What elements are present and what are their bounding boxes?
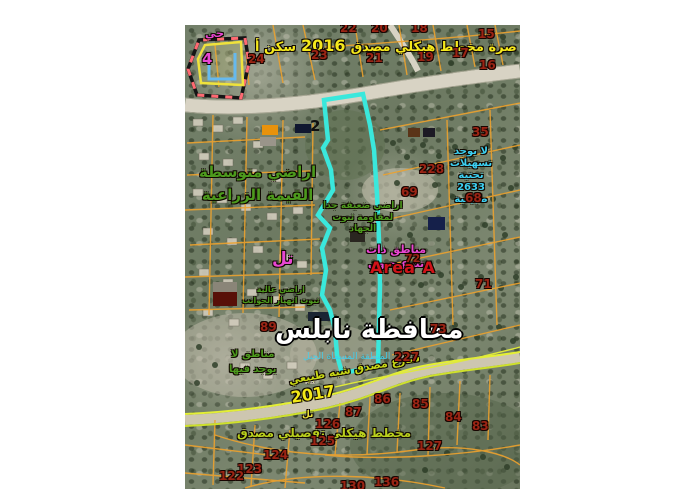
- no-zones-label: مناطق لا يوجد فيها: [229, 348, 276, 377]
- satellite-map[interactable]: سكن أ 2016 صرة مخطط هيكلي مصدق حي 4 2 ار…: [185, 25, 520, 489]
- high-lands-line2: ثبوت انهيار الجوانب: [242, 296, 320, 307]
- no-facilities-line2: تسهيلات: [448, 158, 494, 170]
- land-weak-line1: اراضي ضعيفة جدا: [323, 201, 403, 213]
- district-number: 4: [202, 51, 212, 68]
- parcel-number-18: 18: [411, 25, 428, 35]
- parcel-number-69: 69: [401, 185, 418, 199]
- parcel-number-17: 17: [452, 46, 469, 60]
- parcel-number-19: 19: [417, 50, 434, 64]
- parcel-number-130: 130: [340, 479, 365, 489]
- no-facilities-line3: تحتية: [448, 170, 494, 182]
- parcel-number-124: 124: [263, 448, 288, 462]
- area-a-label: Area A: [370, 259, 436, 277]
- parcel-number-84: 84: [445, 410, 462, 424]
- parcel-number-16: 16: [479, 58, 496, 72]
- parcel-number-24: 24: [248, 52, 265, 66]
- parcel-number-68: 68: [465, 191, 482, 205]
- parcel-number-72: 72: [405, 252, 420, 265]
- parcel-number-85: 85: [412, 397, 429, 411]
- parcel-number-136: 136: [374, 475, 399, 489]
- no-zones-line2: يوجد فيها: [229, 363, 276, 378]
- parcel-number-87: 87: [345, 405, 362, 419]
- parcel-number-228: 228: [419, 162, 444, 176]
- high-lands-line1: اراضي عالية: [242, 285, 320, 296]
- parcel-number-127: 127: [417, 439, 442, 453]
- parcel-number-126: 126: [315, 417, 340, 431]
- district-label: حي: [205, 28, 224, 41]
- land-medium-value-label: اراضي متوسطة القيمة الزراعية: [199, 161, 316, 208]
- parcel-number-15: 15: [478, 27, 495, 41]
- parcel-number-86: 86: [374, 392, 391, 406]
- land-weak-line2: لمقاومة ثبوت: [323, 213, 403, 225]
- high-lands-label: اراضي عالية ثبوت انهيار الجوانب: [242, 285, 320, 307]
- parcel-number-122: 122: [219, 469, 244, 483]
- map-overlay-graphics: [185, 25, 520, 489]
- neighbourhood-boundary-shapes: [188, 38, 249, 98]
- parcel-number-125: 125: [310, 434, 335, 448]
- parcel-number-35: 35: [472, 125, 489, 139]
- tell-town-label: تل: [272, 250, 294, 270]
- land-weak-line3: الجهاد: [323, 224, 403, 236]
- parcel-number-21: 21: [366, 51, 383, 65]
- parcel-number-83: 83: [472, 419, 489, 433]
- parcel-number-20: 20: [371, 25, 388, 35]
- parcel-number-23: 23: [311, 48, 328, 62]
- land-medium-line2: القيمة الزراعية: [199, 184, 316, 207]
- parcel-number-89: 89: [260, 320, 277, 334]
- parcel-number-227: 227: [394, 350, 419, 364]
- land-medium-line1: اراضي متوسطة: [199, 161, 316, 184]
- parcel-number-22: 22: [340, 25, 357, 35]
- parcel-number-71: 71: [475, 277, 492, 291]
- screenshot-stage: سكن أ 2016 صرة مخطط هيكلي مصدق حي 4 2 ار…: [0, 0, 700, 490]
- parcel-number-73: 73: [430, 322, 447, 336]
- no-zones-line1: مناطق لا: [229, 348, 276, 363]
- land-weak-label: اراضي ضعيفة جدا لمقاومة ثبوت الجهاد: [323, 201, 403, 236]
- no-facilities-line1: لا يوجد: [448, 146, 494, 158]
- tell-small-label: تل: [302, 410, 313, 420]
- legend-number: 2: [310, 118, 320, 135]
